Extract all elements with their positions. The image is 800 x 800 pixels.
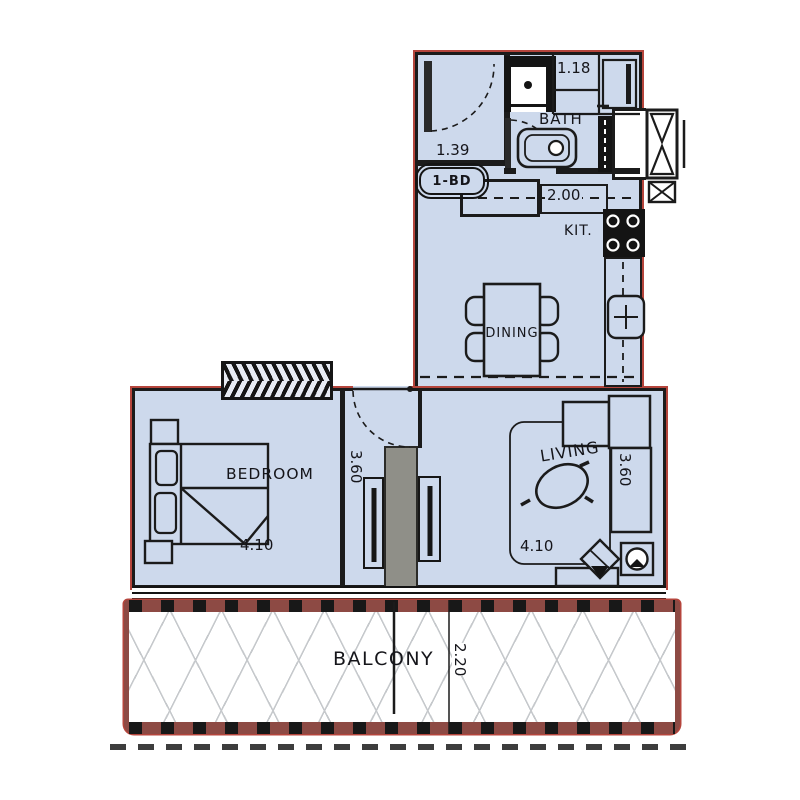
sliding-panel-left bbox=[363, 477, 384, 569]
panel-track bbox=[427, 486, 432, 556]
dim-living-depth: 3.60 bbox=[617, 453, 632, 486]
wardrobe bbox=[221, 361, 333, 400]
sliding-panel-right bbox=[418, 476, 441, 562]
duct-shaft-icon bbox=[647, 110, 684, 202]
entry-bottom-wall bbox=[418, 160, 508, 166]
room-label-bedroom: BEDROOM bbox=[226, 467, 314, 483]
room-label-dining: DINING bbox=[484, 327, 540, 340]
kitchen-counter bbox=[604, 257, 642, 387]
property-line bbox=[110, 744, 696, 750]
room-label-bath: BATH bbox=[539, 112, 583, 127]
dim-living-width: 4.10 bbox=[518, 539, 555, 554]
dim-closet-width: 2.00 bbox=[545, 188, 582, 203]
panel-track bbox=[371, 488, 376, 562]
dim-balcony-depth: 2.20 bbox=[452, 643, 467, 676]
dim-bath-width: 1.18 bbox=[557, 61, 590, 76]
room-label-balcony: BALCONY bbox=[333, 650, 434, 669]
entry-bath-wall bbox=[504, 55, 510, 166]
room-label-kitchen: KIT. bbox=[564, 224, 593, 238]
balcony-rail-top bbox=[129, 600, 675, 612]
floor-plan: 1-BD BATH KIT. DINING LIVING BEDROOM BAL… bbox=[0, 0, 800, 800]
dim-bedroom-width: 4.10 bbox=[240, 538, 273, 553]
bedroom-door-opening bbox=[353, 386, 409, 392]
wardrobe-hatch bbox=[224, 381, 330, 398]
unit-type-badge: 1-BD bbox=[419, 167, 485, 195]
dim-entry-width: 1.39 bbox=[436, 143, 469, 158]
bath-bottom-wall bbox=[556, 168, 640, 174]
bath-wall-stub bbox=[504, 168, 516, 174]
bath-door-opening bbox=[516, 166, 556, 175]
dim-bedroom-depth: 3.60 bbox=[348, 450, 363, 483]
window-band bbox=[132, 586, 666, 600]
media-partition bbox=[384, 446, 418, 592]
balcony-rail-bottom bbox=[129, 722, 675, 734]
bedroom-hall-wall bbox=[340, 391, 345, 586]
hall-living-wall bbox=[418, 391, 422, 448]
wardrobe-hatch bbox=[224, 364, 330, 381]
